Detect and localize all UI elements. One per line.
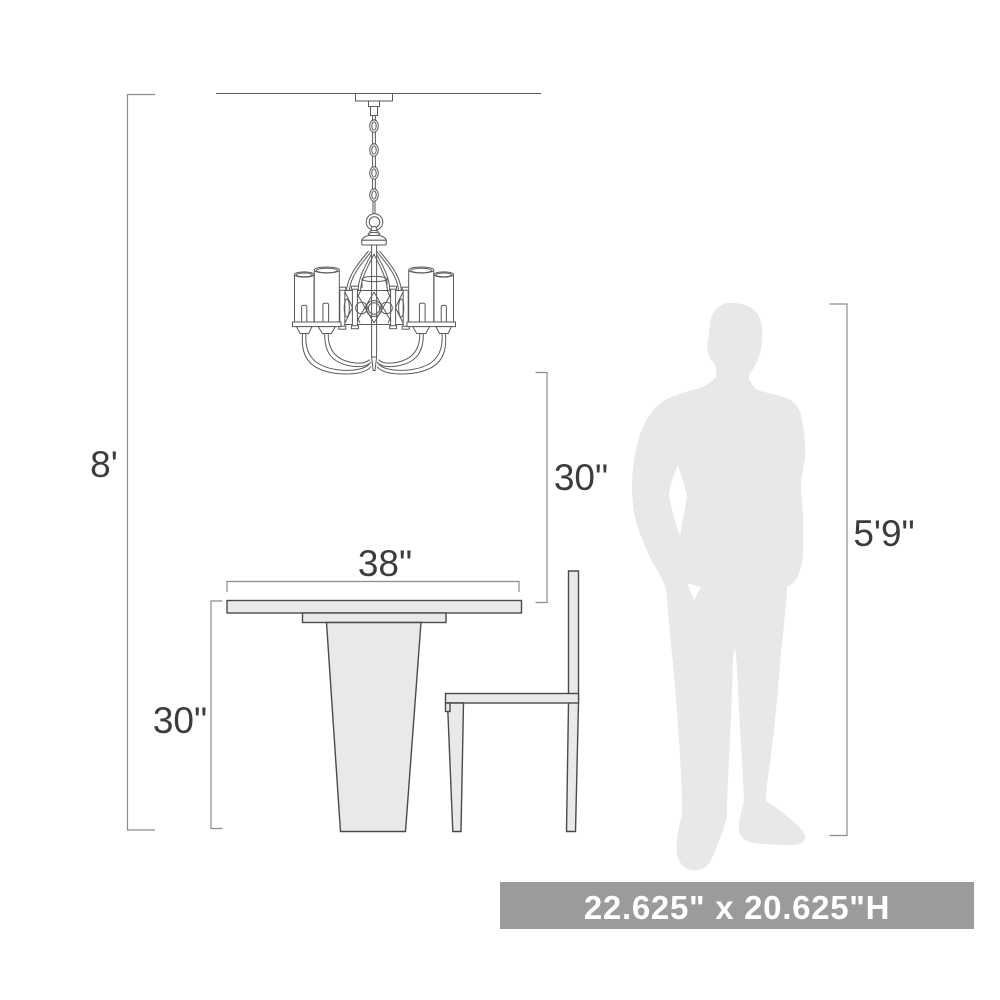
- svg-text:30": 30": [153, 700, 207, 741]
- svg-text:8': 8': [90, 444, 118, 485]
- svg-text:38": 38": [358, 543, 412, 584]
- svg-text:5'9": 5'9": [853, 513, 914, 554]
- svg-text:22.625" x 20.625"H: 22.625" x 20.625"H: [584, 889, 890, 926]
- svg-text:30": 30": [554, 457, 608, 498]
